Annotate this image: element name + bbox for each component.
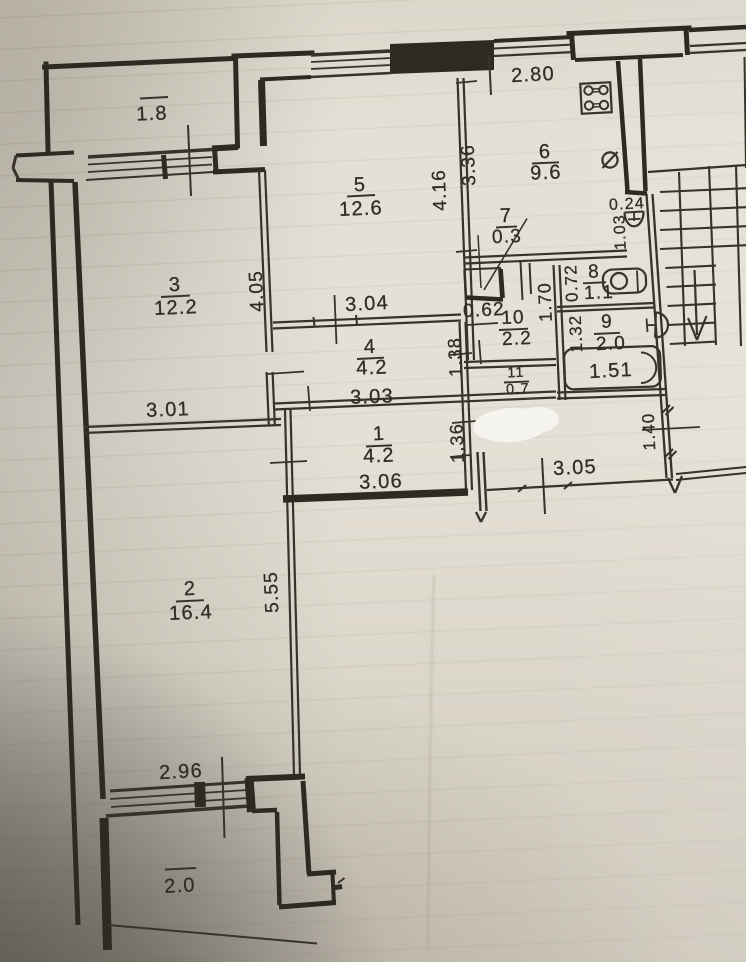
svg-text:1.38: 1.38 (444, 337, 466, 378)
svg-text:1.51: 1.51 (589, 359, 634, 383)
svg-text:0.62: 0.62 (463, 299, 506, 322)
svg-text:2: 2 (183, 578, 196, 600)
svg-text:12.6: 12.6 (339, 197, 384, 221)
svg-text:1.8: 1.8 (136, 102, 168, 125)
svg-text:4.2: 4.2 (356, 356, 388, 379)
svg-text:3.01: 3.01 (146, 398, 191, 422)
svg-text:4.16: 4.16 (429, 169, 452, 212)
svg-text:2.0: 2.0 (596, 333, 627, 355)
svg-text:10: 10 (501, 307, 525, 329)
svg-text:4: 4 (363, 336, 376, 358)
svg-text:0.24: 0.24 (609, 195, 646, 214)
svg-text:7: 7 (499, 205, 512, 227)
svg-text:1.1: 1.1 (584, 282, 615, 304)
svg-text:1.36: 1.36 (446, 423, 468, 464)
svg-text:5.55: 5.55 (261, 571, 284, 614)
svg-text:3.06: 3.06 (359, 470, 403, 494)
svg-text:5: 5 (353, 174, 366, 196)
svg-text:2.2: 2.2 (502, 328, 533, 350)
svg-text:9.6: 9.6 (530, 161, 562, 184)
svg-text:3.05: 3.05 (553, 456, 598, 480)
svg-text:4.2: 4.2 (363, 444, 395, 467)
svg-text:3.03: 3.03 (350, 385, 394, 409)
svg-text:1.40: 1.40 (639, 412, 660, 451)
svg-text:12.2: 12.2 (154, 296, 199, 320)
svg-text:1: 1 (372, 423, 385, 445)
svg-text:3: 3 (168, 274, 181, 296)
svg-text:3.36: 3.36 (458, 144, 481, 187)
svg-text:1.03: 1.03 (611, 214, 629, 251)
svg-text:1.32: 1.32 (566, 314, 587, 353)
svg-text:16.4: 16.4 (169, 601, 214, 625)
svg-text:4.05: 4.05 (246, 270, 269, 313)
svg-text:2.80: 2.80 (511, 63, 556, 87)
svg-text:0.7: 0.7 (506, 381, 530, 398)
svg-text:9: 9 (601, 311, 614, 332)
svg-text:11: 11 (507, 365, 525, 382)
svg-text:2.96: 2.96 (159, 760, 204, 784)
svg-text:3.04: 3.04 (345, 292, 390, 316)
svg-text:0.3: 0.3 (492, 226, 523, 248)
svg-text:2.0: 2.0 (164, 874, 197, 898)
svg-text:0.72: 0.72 (561, 264, 582, 303)
svg-text:8: 8 (588, 261, 601, 282)
svg-text:6: 6 (538, 141, 551, 163)
svg-text:1.70: 1.70 (534, 282, 556, 323)
